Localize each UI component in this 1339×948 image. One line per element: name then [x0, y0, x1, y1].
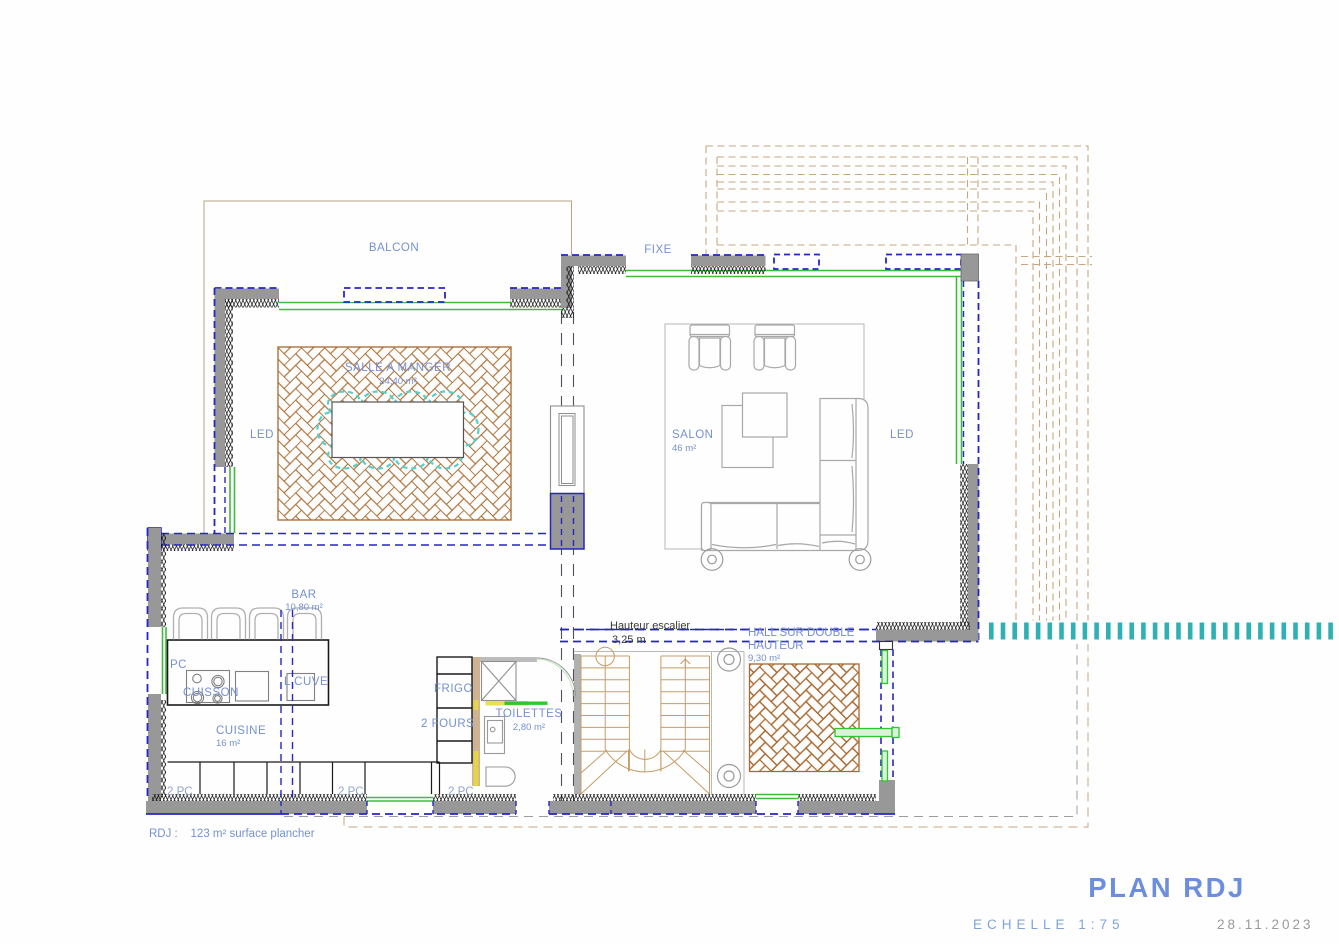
svg-text:FIXE: FIXE: [644, 244, 672, 256]
svg-text:HAUTEUR: HAUTEUR: [748, 640, 804, 652]
svg-text:24,40 m²: 24,40 m²: [379, 376, 417, 387]
svg-text:2 FOURS: 2 FOURS: [421, 718, 474, 730]
svg-text:LED: LED: [250, 429, 274, 441]
svg-text:ECHELLE 1:75: ECHELLE 1:75: [973, 917, 1125, 932]
svg-text:2 PC: 2 PC: [167, 786, 193, 798]
svg-text:FRIGO: FRIGO: [434, 683, 473, 695]
svg-text:TOILETTES: TOILETTES: [496, 708, 563, 720]
svg-text:RDJ : 123 m² surface planch: RDJ : 123 m² surface plancher: [149, 828, 315, 840]
svg-text:10,80 m²: 10,80 m²: [285, 602, 323, 613]
svg-text:46 m²: 46 m²: [672, 443, 696, 454]
svg-text:PLAN RDJ: PLAN RDJ: [1088, 872, 1246, 903]
svg-text:HALL SUR DOUBLE: HALL SUR DOUBLE: [748, 627, 855, 639]
svg-text:SALON: SALON: [672, 429, 714, 441]
svg-text:BAR: BAR: [291, 589, 316, 601]
svg-text:PC: PC: [170, 659, 187, 671]
svg-text:2 PC: 2 PC: [448, 786, 474, 798]
svg-text:28.11.2023: 28.11.2023: [1217, 917, 1314, 932]
svg-text:L CUVE: L CUVE: [284, 676, 328, 688]
svg-text:CUISINE: CUISINE: [216, 725, 266, 737]
svg-text:3,25 m: 3,25 m: [612, 634, 646, 646]
svg-text:2 PC: 2 PC: [338, 786, 364, 798]
svg-text:Hauteur escalier: Hauteur escalier: [610, 620, 690, 632]
svg-text:LED: LED: [890, 429, 914, 441]
svg-text:9,30 m²: 9,30 m²: [748, 653, 780, 664]
svg-text:16 m²: 16 m²: [216, 738, 240, 749]
svg-text:CUISSON: CUISSON: [183, 687, 239, 699]
svg-text:SALLE A MANGER: SALLE A MANGER: [345, 362, 451, 374]
svg-text:2,80 m²: 2,80 m²: [513, 722, 545, 733]
svg-text:BALCON: BALCON: [369, 242, 419, 254]
